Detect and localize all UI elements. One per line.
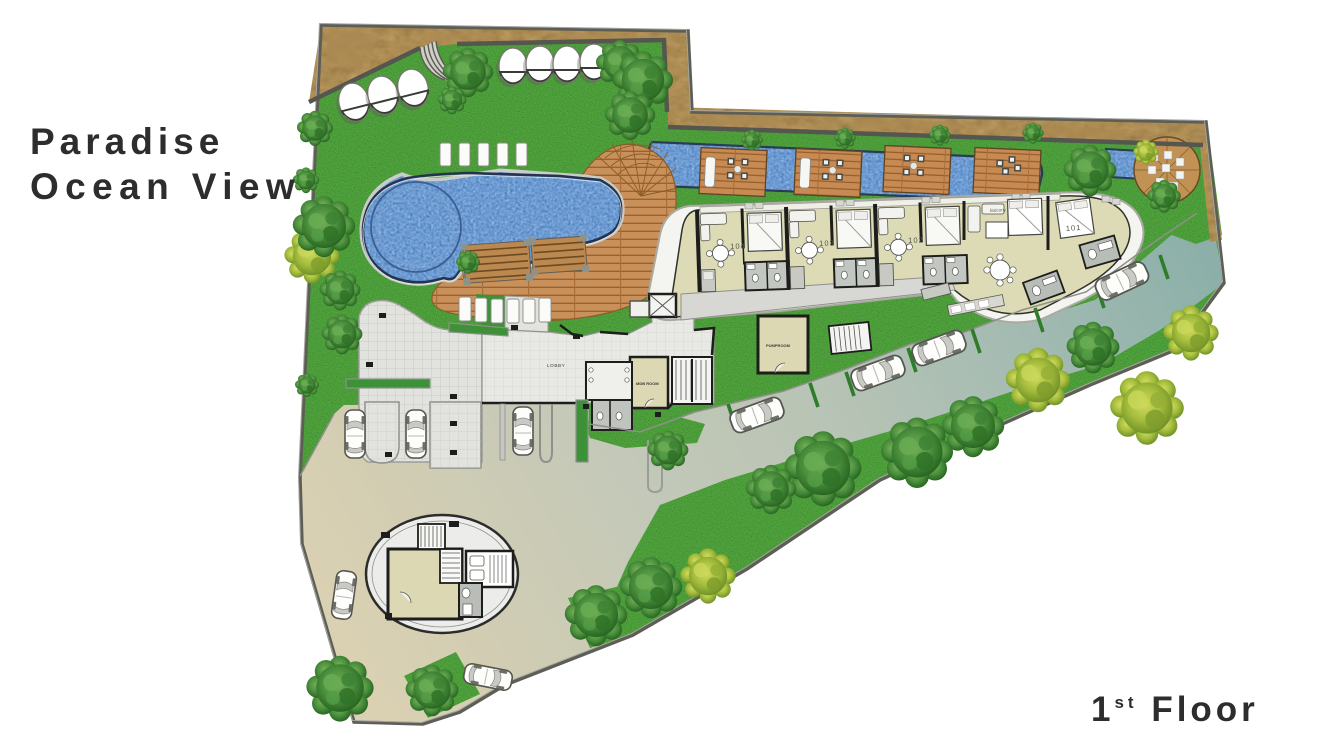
svg-text:Balcony: Balcony bbox=[990, 207, 1007, 213]
svg-text:Ocean View: Ocean View bbox=[30, 166, 301, 207]
svg-text:104: 104 bbox=[730, 241, 746, 251]
svg-text:LOBBY: LOBBY bbox=[547, 363, 565, 368]
svg-text:PUMPROOM: PUMPROOM bbox=[766, 343, 791, 348]
svg-text:102: 102 bbox=[908, 235, 924, 245]
svg-text:Paradise: Paradise bbox=[30, 121, 224, 162]
svg-text:103: 103 bbox=[819, 238, 835, 248]
svg-text:MDB ROOM: MDB ROOM bbox=[636, 381, 659, 386]
svg-text:101: 101 bbox=[1066, 223, 1082, 233]
